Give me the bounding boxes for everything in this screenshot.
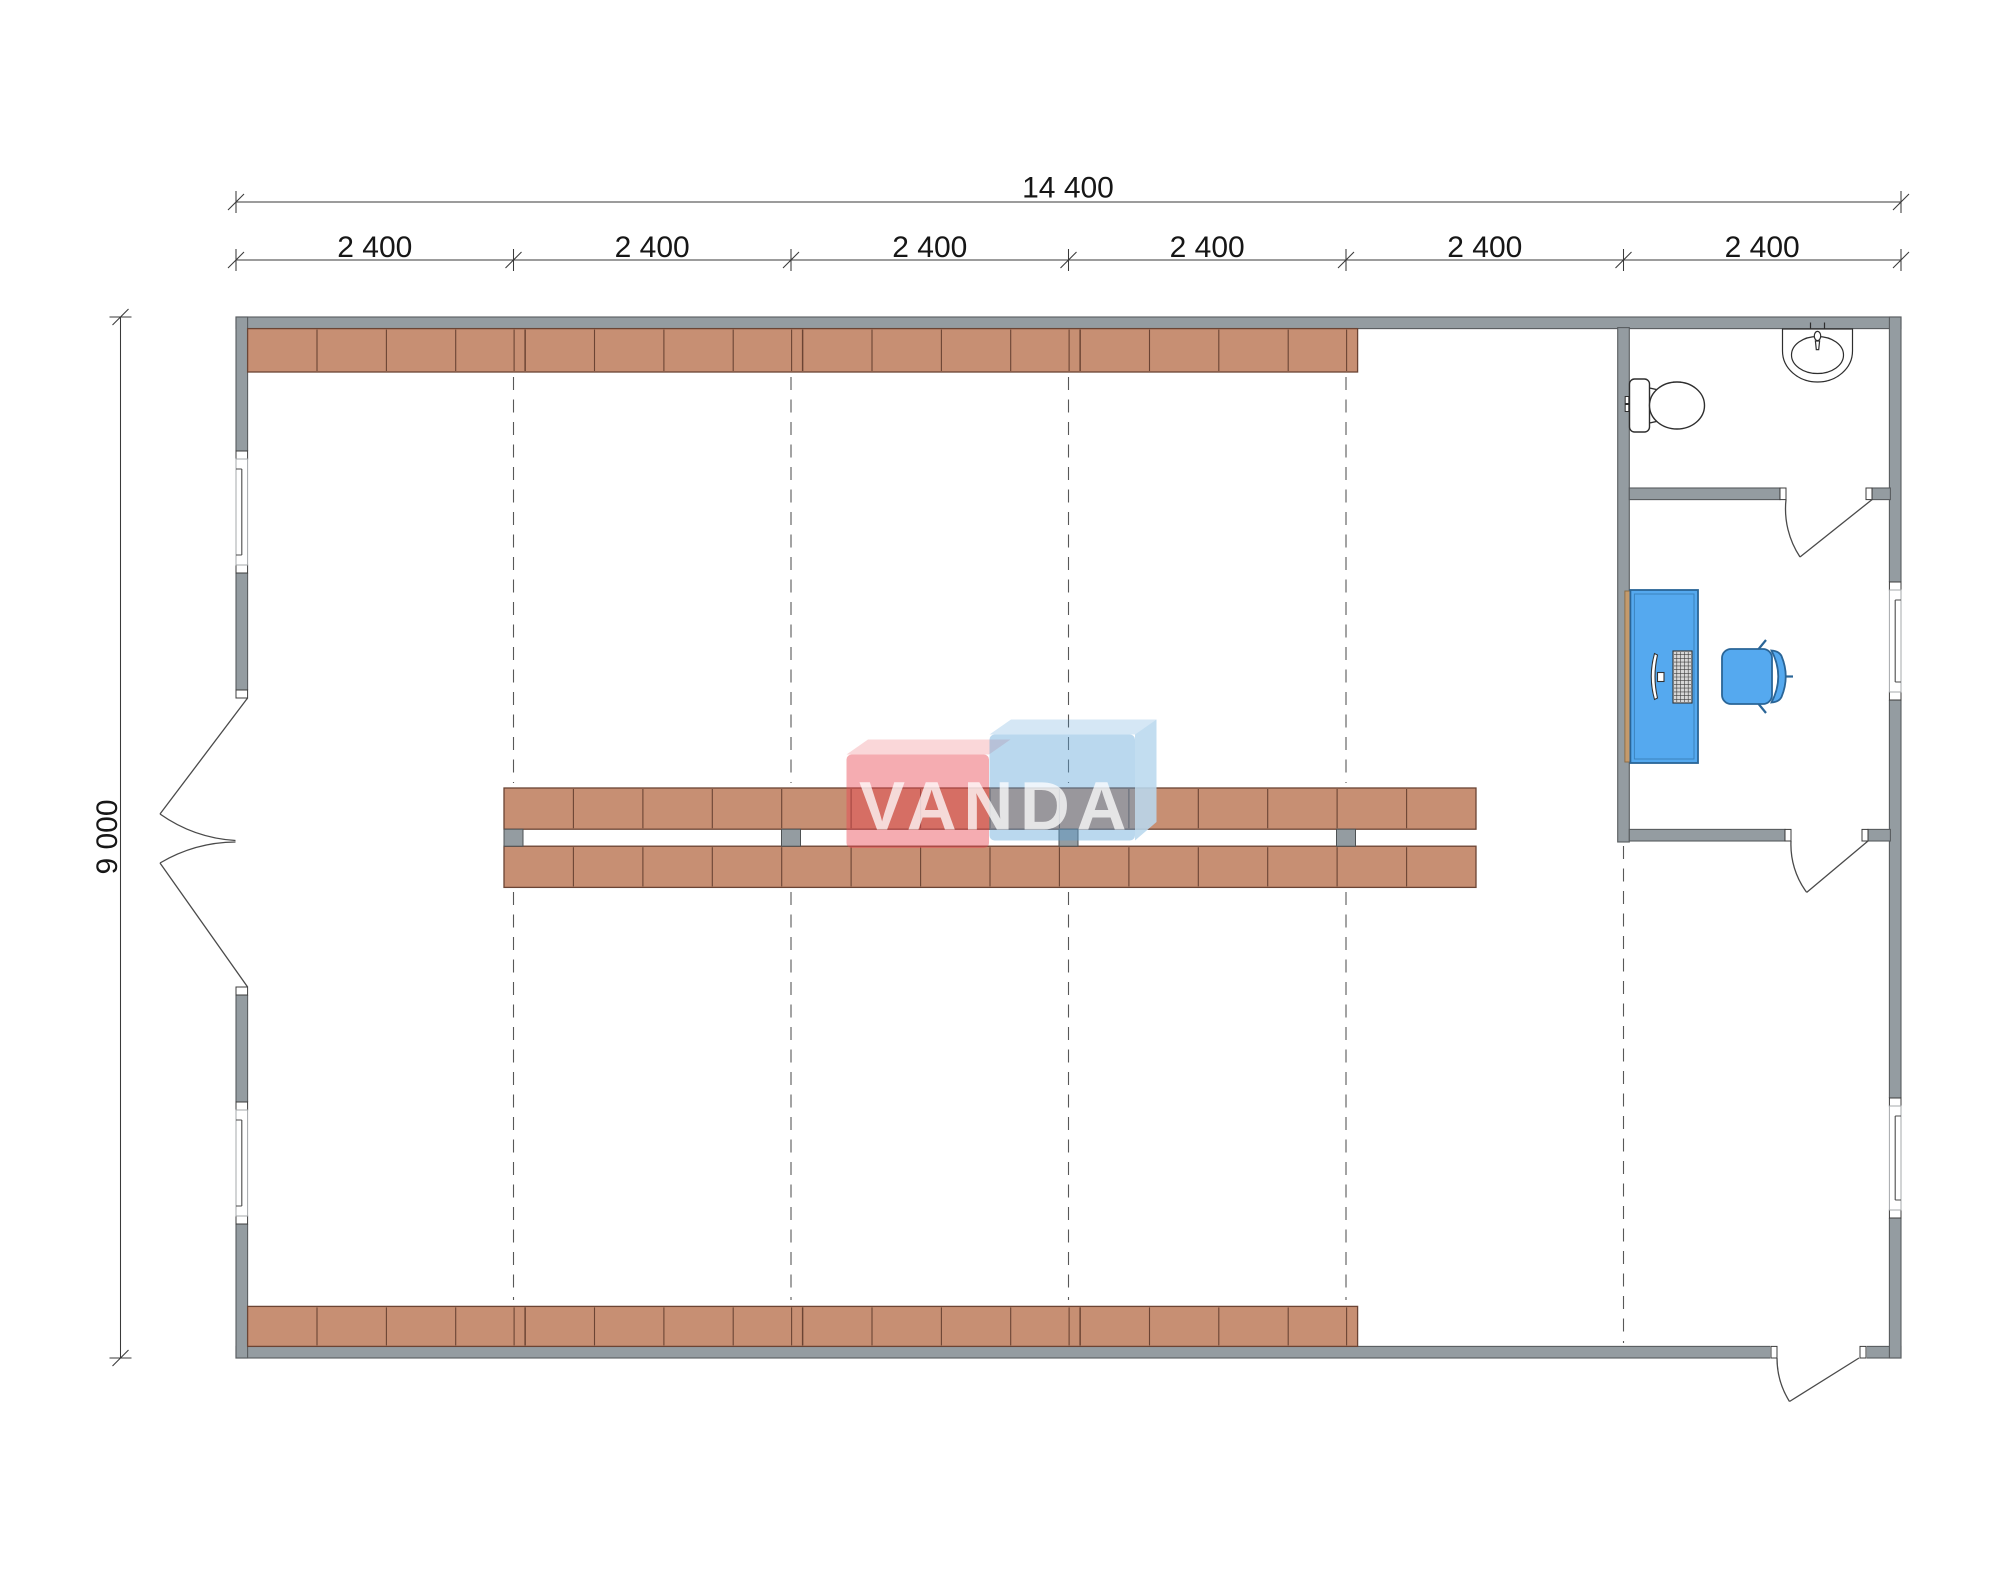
svg-text:9 000: 9 000 — [91, 799, 124, 874]
svg-text:2 400: 2 400 — [1170, 231, 1245, 264]
svg-text:2 400: 2 400 — [615, 231, 690, 264]
svg-text:14 400: 14 400 — [1022, 172, 1114, 205]
svg-text:2 400: 2 400 — [337, 231, 412, 264]
svg-text:2 400: 2 400 — [1725, 231, 1800, 264]
svg-text:2 400: 2 400 — [892, 231, 967, 264]
svg-text:2 400: 2 400 — [1447, 231, 1522, 264]
svg-text:VANDA: VANDA — [859, 768, 1133, 845]
